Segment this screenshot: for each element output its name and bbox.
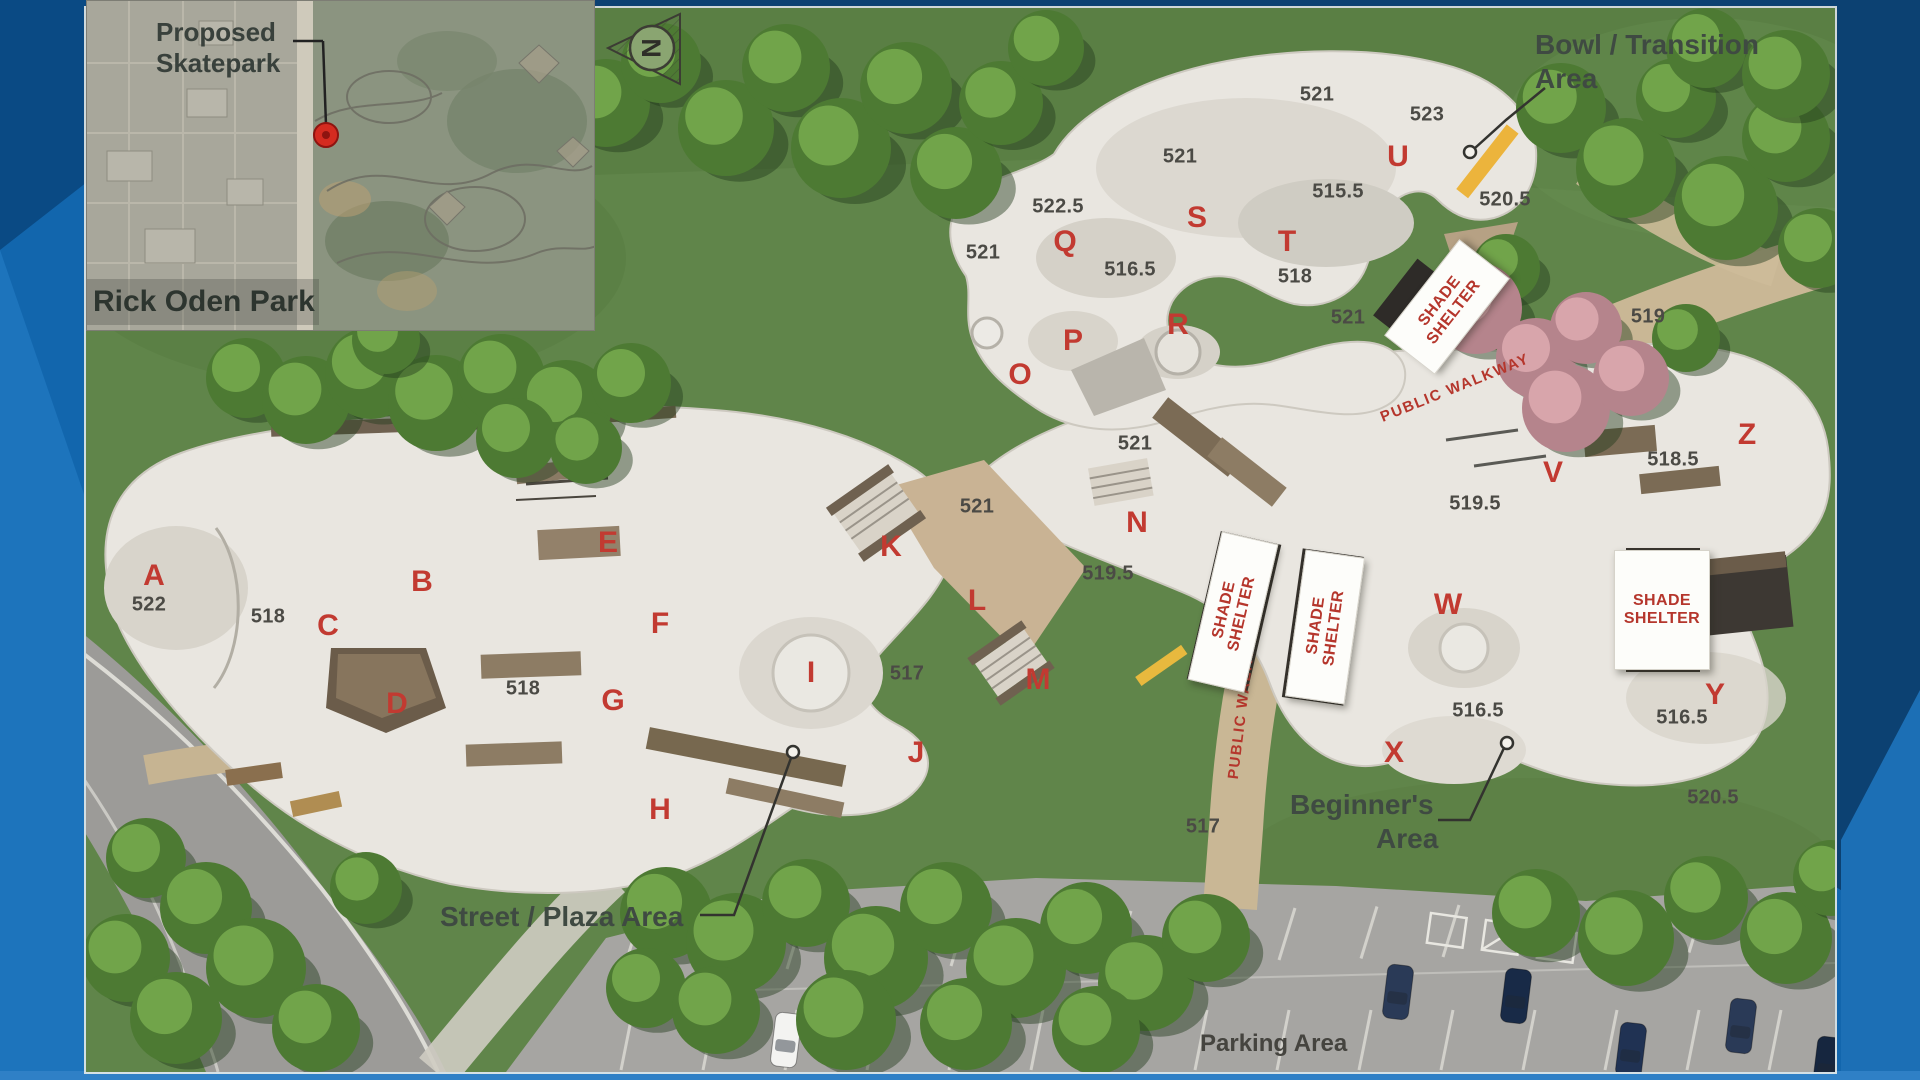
inset-locator-map: Proposed Skatepark Rick Oden Park <box>86 0 595 331</box>
elevation-label: 521 <box>1300 84 1334 107</box>
area-letter-O: O <box>1008 358 1031 392</box>
elevation-label: 518 <box>506 678 540 701</box>
beginners-label-line2: Area <box>1376 822 1438 856</box>
elevation-label: 517 <box>890 663 924 686</box>
callout-line2: Skatepark <box>156 48 280 78</box>
bowl-label-line1: Bowl / Transition <box>1535 29 1759 60</box>
park-name-label: Rick Oden Park <box>93 285 315 319</box>
area-letter-Z: Z <box>1738 418 1756 452</box>
shade-shelter-label: SHADESHELTER <box>1409 266 1484 348</box>
area-letter-E: E <box>598 526 618 560</box>
area-letter-G: G <box>601 684 624 718</box>
elevation-label: 516.5 <box>1656 707 1708 730</box>
street-label-text: Street / Plaza Area <box>440 901 683 932</box>
shade-shelter-label: SHADESHELTER <box>1302 587 1348 668</box>
street-plaza-area-label: Street / Plaza Area <box>440 900 683 934</box>
elevation-label: 515.5 <box>1312 181 1364 204</box>
area-letter-F: F <box>651 607 669 641</box>
area-letter-P: P <box>1063 324 1083 358</box>
area-letter-N: N <box>1126 506 1148 540</box>
area-letter-T: T <box>1278 225 1296 259</box>
shade-shelter: SHADESHELTER <box>1614 550 1710 670</box>
area-letter-S: S <box>1187 201 1207 235</box>
elevation-label: 521 <box>966 242 1000 265</box>
elevation-label: 523 <box>1410 104 1444 127</box>
north-arrow-letter: N <box>637 38 668 58</box>
shade-shelter: SHADESHELTER <box>1285 550 1365 705</box>
elevation-label: 522.5 <box>1032 196 1084 219</box>
area-letter-H: H <box>649 793 671 827</box>
elevation-label: 520.5 <box>1479 189 1531 212</box>
elevation-label: 518 <box>251 606 285 629</box>
elevation-label: 521 <box>1331 307 1365 330</box>
elevation-label: 519.5 <box>1082 563 1134 586</box>
area-letter-J: J <box>908 736 925 770</box>
elevation-label: 522 <box>132 594 166 617</box>
elevation-label: 519 <box>1631 306 1665 329</box>
beginners-label-line1: Beginner's <box>1290 789 1434 820</box>
elevation-label: 521 <box>1163 146 1197 169</box>
public-walkway-label: PUBLIC WALKWAY <box>1378 350 1532 425</box>
area-letter-C: C <box>317 609 339 643</box>
callout-line1: Proposed <box>156 17 276 47</box>
parking-area-label: Parking Area <box>1200 1030 1347 1059</box>
area-letter-K: K <box>880 530 902 564</box>
elevation-label: 518 <box>1278 266 1312 289</box>
area-letter-R: R <box>1167 308 1189 342</box>
area-letter-D: D <box>386 687 408 721</box>
area-letter-B: B <box>411 565 433 599</box>
beginners-area-label: Beginner's Area <box>1290 788 1438 855</box>
area-letter-I: I <box>807 656 815 690</box>
area-letter-M: M <box>1026 663 1051 697</box>
elevation-label: 517 <box>1186 816 1220 839</box>
elevation-label: 519.5 <box>1449 493 1501 516</box>
elevation-label: 518.5 <box>1647 449 1699 472</box>
shade-shelter: SHADESHELTER <box>1188 531 1279 692</box>
area-letter-A: A <box>143 559 165 593</box>
shade-shelter: SHADESHELTER <box>1384 239 1510 375</box>
elevation-label: 516.5 <box>1104 259 1156 282</box>
area-letter-V: V <box>1543 456 1563 490</box>
proposed-skatepark-callout: Proposed Skatepark <box>156 17 280 78</box>
bowl-label-line2: Area <box>1535 62 1759 96</box>
area-letter-W: W <box>1434 588 1462 622</box>
elevation-label: 516.5 <box>1452 700 1504 723</box>
area-letter-X: X <box>1384 736 1404 770</box>
elevation-label: 520.5 <box>1687 787 1739 810</box>
area-letter-L: L <box>968 584 986 618</box>
elevation-label: 521 <box>960 496 994 519</box>
area-letter-Y: Y <box>1705 678 1725 712</box>
bowl-transition-area-label: Bowl / Transition Area <box>1535 28 1759 95</box>
shade-shelter-label: SHADESHELTER <box>1207 571 1259 653</box>
shade-shelter-label: SHADESHELTER <box>1624 592 1700 628</box>
area-letter-U: U <box>1387 140 1409 174</box>
elevation-label: 521 <box>1118 433 1152 456</box>
area-letter-Q: Q <box>1053 225 1076 259</box>
parking-label-text: Parking Area <box>1200 1030 1347 1057</box>
